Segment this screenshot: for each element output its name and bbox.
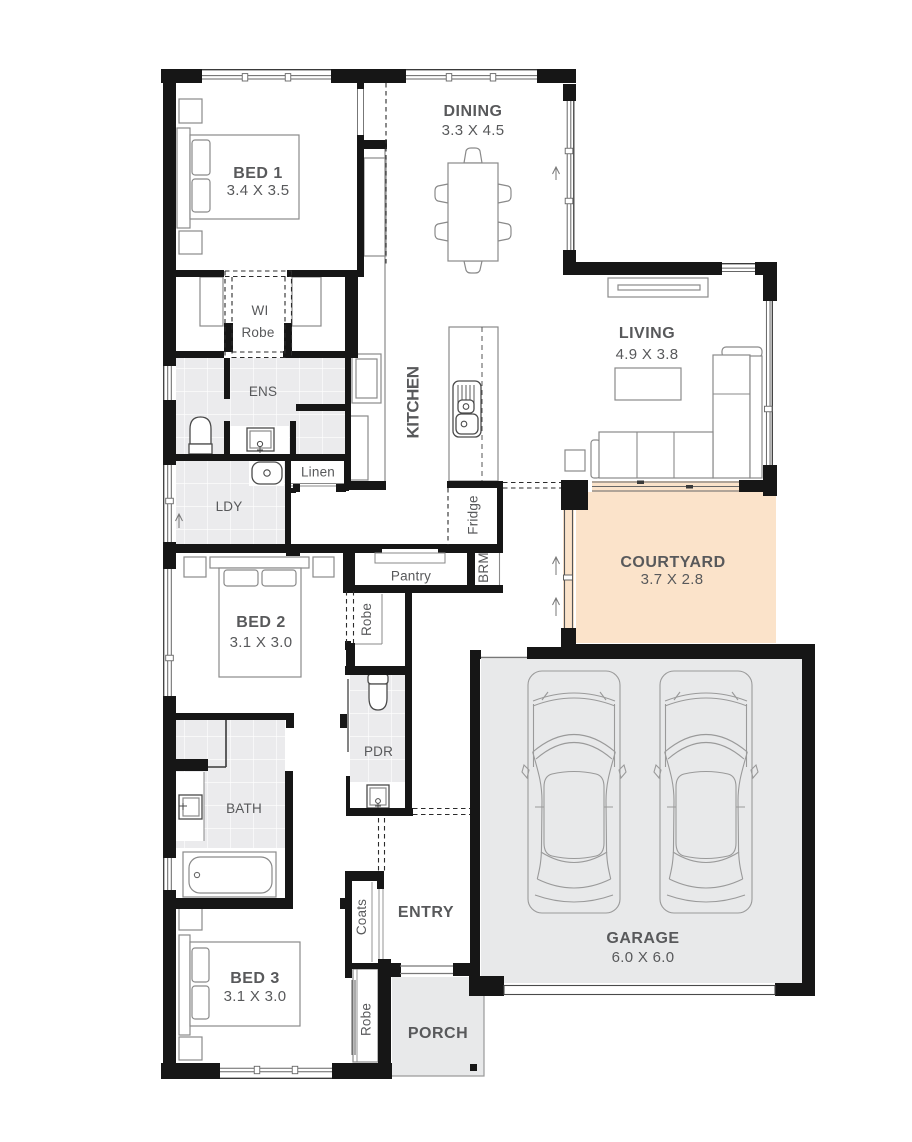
svg-text:BATH: BATH bbox=[226, 801, 262, 816]
svg-text:BED 1: BED 1 bbox=[233, 165, 283, 182]
svg-text:3.3 X 4.5: 3.3 X 4.5 bbox=[442, 122, 505, 139]
svg-text:LDY: LDY bbox=[216, 499, 243, 514]
svg-text:ENS: ENS bbox=[249, 384, 277, 399]
svg-text:3.1 X 3.0: 3.1 X 3.0 bbox=[230, 634, 293, 651]
svg-text:BED 2: BED 2 bbox=[236, 614, 286, 631]
svg-text:KITCHEN: KITCHEN bbox=[404, 366, 423, 438]
svg-text:Pantry: Pantry bbox=[391, 569, 431, 584]
svg-text:LIVING: LIVING bbox=[619, 325, 675, 342]
svg-text:Coats: Coats bbox=[354, 899, 369, 935]
svg-text:Robe: Robe bbox=[359, 1003, 374, 1036]
svg-text:Fridge: Fridge bbox=[466, 495, 481, 534]
svg-text:3.1 X 3.0: 3.1 X 3.0 bbox=[224, 988, 287, 1005]
svg-text:4.9 X 3.8: 4.9 X 3.8 bbox=[616, 346, 679, 363]
svg-text:ENTRY: ENTRY bbox=[398, 904, 454, 921]
svg-text:COURTYARD: COURTYARD bbox=[620, 554, 725, 571]
svg-text:3.4 X 3.5: 3.4 X 3.5 bbox=[227, 182, 290, 199]
svg-text:PORCH: PORCH bbox=[408, 1025, 468, 1042]
svg-text:6.0 X 6.0: 6.0 X 6.0 bbox=[612, 949, 675, 966]
svg-text:WI: WI bbox=[252, 303, 269, 318]
svg-text:Robe: Robe bbox=[241, 325, 274, 340]
svg-text:GARAGE: GARAGE bbox=[606, 930, 679, 947]
svg-text:3.7 X 2.8: 3.7 X 2.8 bbox=[641, 571, 704, 588]
svg-text:PDR: PDR bbox=[364, 744, 393, 759]
svg-text:Linen: Linen bbox=[301, 465, 335, 480]
svg-text:BRM: BRM bbox=[476, 552, 491, 583]
svg-text:Robe: Robe bbox=[359, 603, 374, 636]
svg-text:BED 3: BED 3 bbox=[230, 970, 280, 987]
svg-text:DINING: DINING bbox=[444, 103, 503, 120]
